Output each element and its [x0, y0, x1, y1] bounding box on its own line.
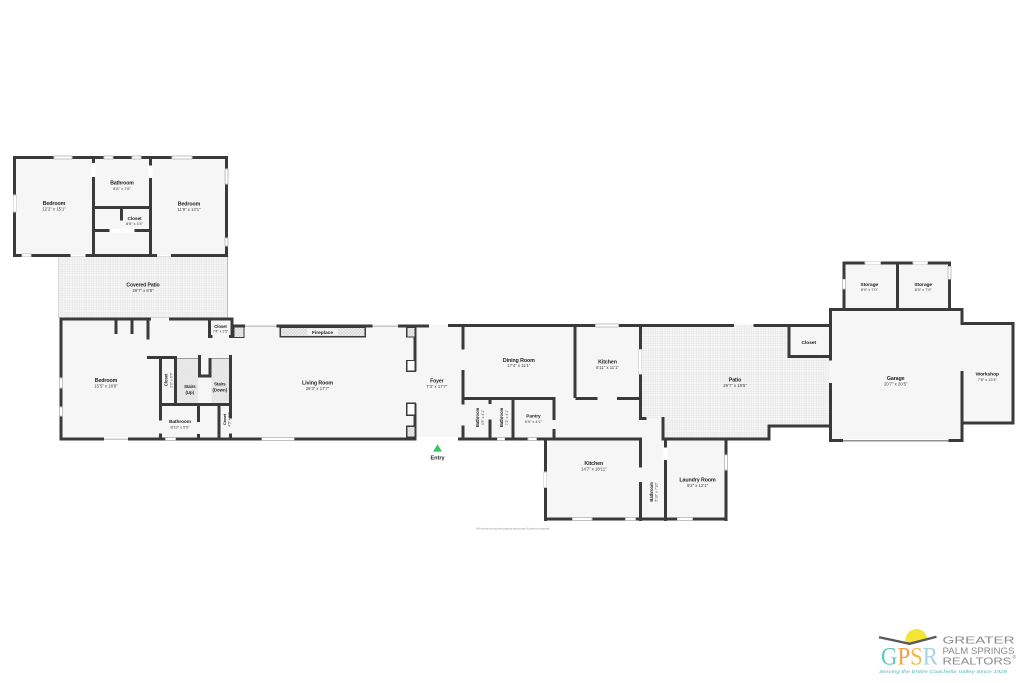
svg-text:Fireplace: Fireplace — [312, 330, 333, 336]
svg-text:11’8” x 13’1”: 11’8” x 13’1” — [177, 207, 201, 212]
svg-text:8’0” x 7’0”: 8’0” x 7’0” — [915, 288, 933, 292]
svg-text:4’5” x 2’9”: 4’5” x 2’9” — [227, 412, 231, 426]
svg-text:8’11” x 11’1”: 8’11” x 11’1” — [596, 365, 619, 370]
svg-text:7’4” x 2’5”: 7’4” x 2’5” — [213, 330, 229, 334]
svg-text:6’9” x 4’1”: 6’9” x 4’1” — [525, 420, 543, 424]
svg-text:®: ® — [1013, 654, 1017, 661]
svg-text:Entry: Entry — [430, 456, 445, 462]
svg-text:Stairs: Stairs — [184, 384, 196, 389]
svg-text:20’7” x 20’5”: 20’7” x 20’5” — [884, 381, 908, 386]
svg-text:7’3” x 17’7”: 7’3” x 17’7” — [426, 384, 448, 389]
svg-text:28’3” x 17’7”: 28’3” x 17’7” — [306, 386, 330, 391]
svg-text:Closet: Closet — [802, 340, 817, 346]
svg-text:REALTORS: REALTORS — [943, 657, 1013, 668]
svg-text:4’9” x 4’1”: 4’9” x 4’1” — [481, 409, 485, 425]
svg-text:Bathroom: Bathroom — [169, 419, 191, 425]
svg-text:(Down): (Down) — [212, 387, 227, 392]
svg-text:7’2” x 4’1”: 7’2” x 4’1” — [505, 409, 509, 425]
svg-text:(Up): (Up) — [185, 390, 194, 395]
svg-text:Bathroom: Bathroom — [499, 408, 504, 428]
svg-text:8’0” x 7’0”: 8’0” x 7’0” — [861, 288, 879, 292]
svg-text:15’5” x 18’8”: 15’5” x 18’8” — [94, 383, 118, 388]
svg-text:8’10” x 5’5”: 8’10” x 5’5” — [170, 425, 190, 429]
svg-text:Stairs: Stairs — [214, 382, 226, 387]
svg-text:17’4” x 11’1”: 17’4” x 11’1” — [507, 363, 531, 368]
svg-text:Bathroom: Bathroom — [649, 482, 654, 502]
svg-text:GPSR: GPSR — [881, 644, 938, 671]
svg-text:Closet: Closet — [164, 373, 169, 386]
svg-text:14’7” x 18’11”: 14’7” x 18’11” — [581, 466, 607, 471]
svg-text:8’8” x 7’6”: 8’8” x 7’6” — [113, 186, 131, 191]
svg-text:26’7” x 9’8”: 26’7” x 9’8” — [132, 288, 154, 293]
svg-text:Serving the Entire Coachella V: Serving the Entire Coachella Valley Sinc… — [879, 669, 1008, 674]
svg-text:GREATER: GREATER — [943, 635, 1016, 647]
svg-text:2’0” x 6’9”: 2’0” x 6’9” — [169, 371, 173, 387]
svg-text:8’8” x 3’4”: 8’8” x 3’4” — [126, 222, 144, 226]
svg-text:PALM SPRINGS: PALM SPRINGS — [943, 646, 1015, 656]
svg-text:Pantry: Pantry — [526, 414, 541, 420]
svg-text:Storage: Storage — [914, 282, 932, 288]
svg-text:5’10” x 7’10”: 5’10” x 7’10” — [655, 482, 659, 502]
svg-text:Closet: Closet — [214, 324, 227, 329]
svg-text:7’8” x 13’4”: 7’8” x 13’4” — [978, 378, 998, 382]
svg-text:Workshop: Workshop — [976, 372, 999, 378]
svg-text:29’7” x 18’5”: 29’7” x 18’5” — [723, 383, 747, 388]
svg-text:All dimensions and square foot: All dimensions and square footage are ap… — [476, 527, 550, 531]
svg-text:Bathroom: Bathroom — [475, 408, 480, 428]
svg-text:Storage: Storage — [860, 282, 878, 288]
svg-text:9’2” x 12’1”: 9’2” x 12’1” — [687, 483, 709, 488]
svg-text:12’2” x 15’1”: 12’2” x 15’1” — [42, 206, 66, 211]
